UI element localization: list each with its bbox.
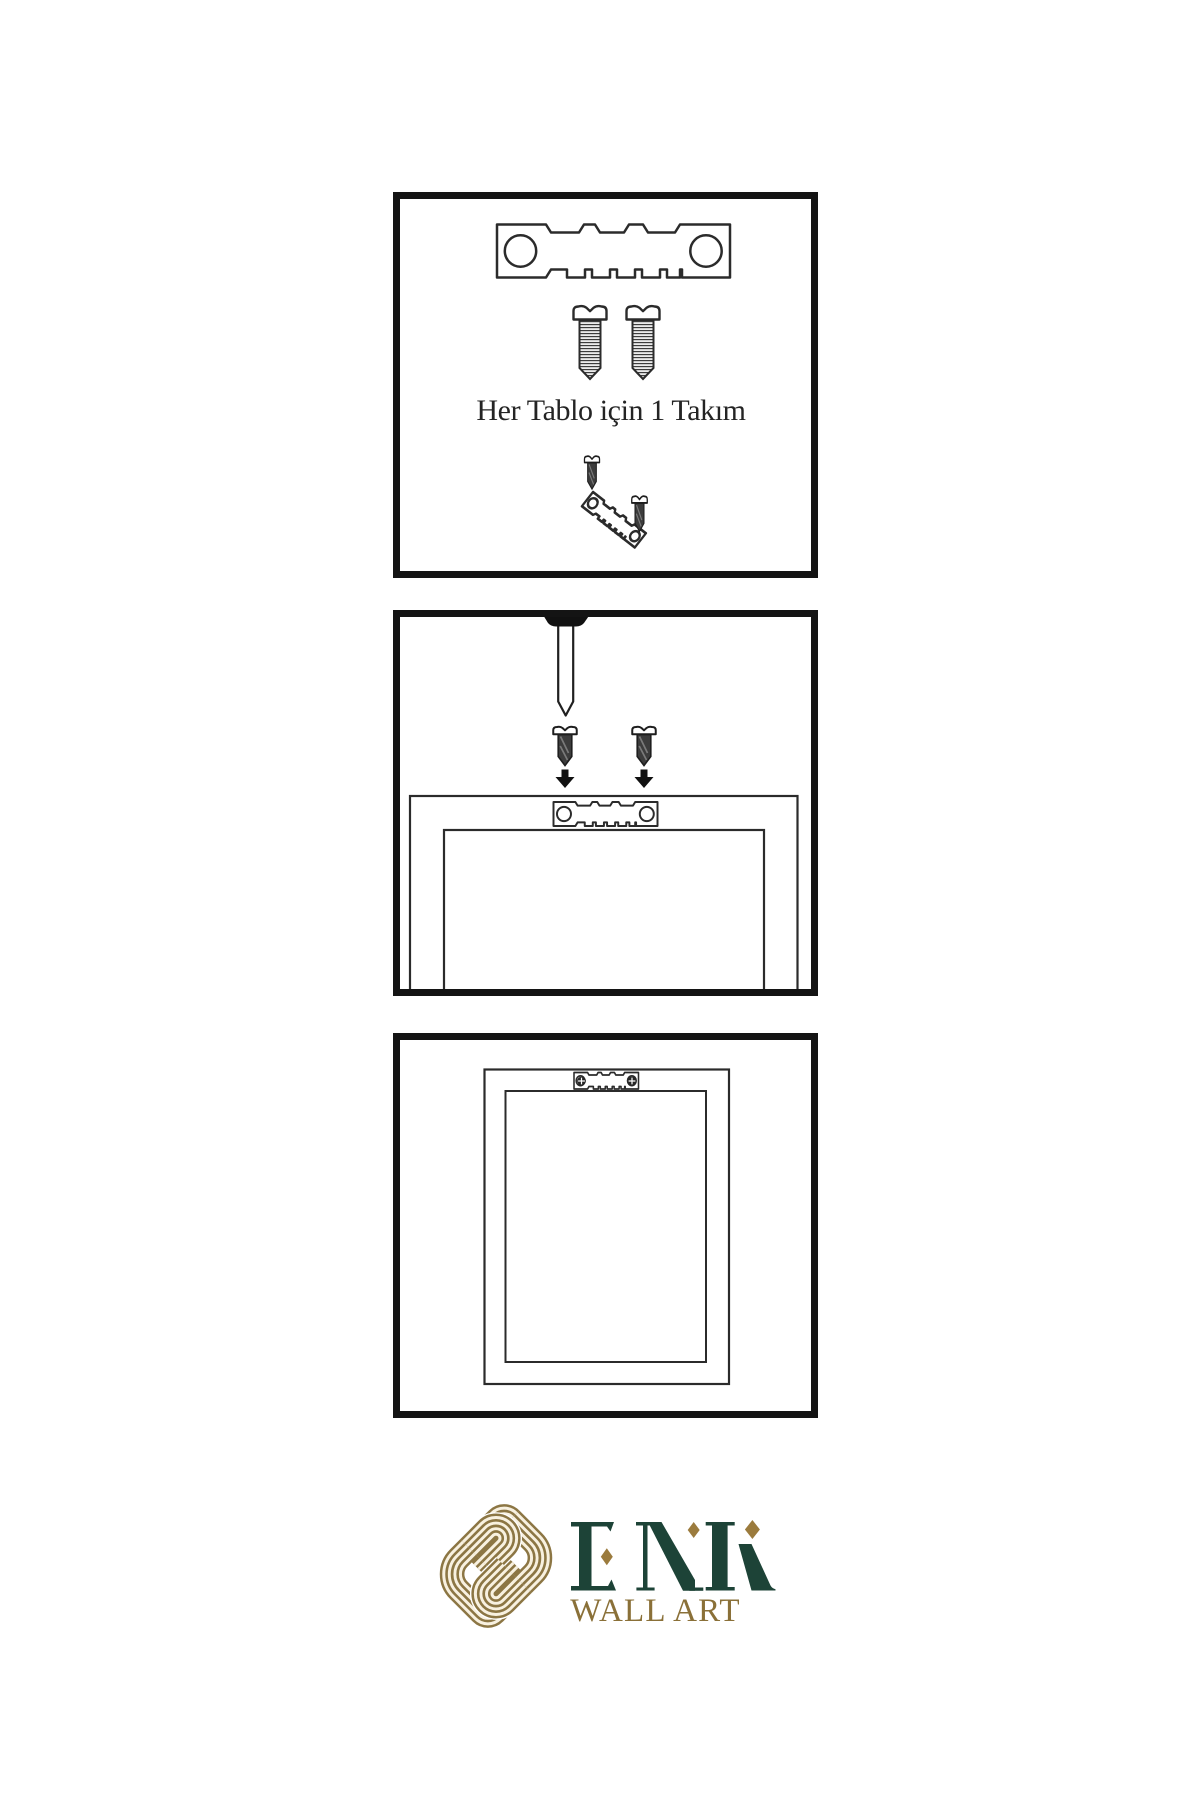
svg-text:Her Tablo için 1 Takım: Her Tablo için 1 Takım bbox=[476, 394, 745, 427]
svg-text:WALL ART: WALL ART bbox=[570, 1593, 740, 1629]
